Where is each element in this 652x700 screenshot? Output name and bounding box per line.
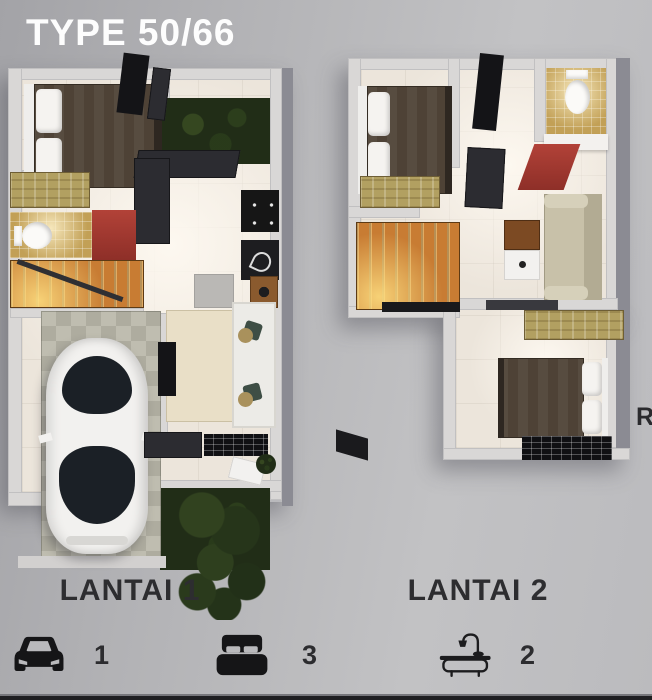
page-title: TYPE 50/66 [26, 12, 236, 54]
floor-label-lantai-1: LANTAI 1 [40, 574, 220, 608]
watermark-text: RS [636, 403, 652, 432]
wall-bathroom [534, 58, 546, 142]
stove [241, 190, 279, 232]
floorplan-lantai-2 [348, 58, 630, 460]
vanity-drain [519, 261, 526, 268]
bed-headboard [602, 358, 608, 438]
car-mirror [38, 432, 53, 443]
car-icon [12, 632, 66, 678]
kitchen-sink [241, 240, 279, 280]
floorplan-poster: TYPE 50/66 [0, 0, 652, 700]
plant-pot [256, 454, 276, 474]
carport-curb [18, 556, 166, 568]
bottom-border [0, 696, 652, 700]
car-bumper [66, 536, 128, 545]
bed-blanket [498, 358, 584, 438]
wardrobe [360, 176, 440, 208]
door-lintel [486, 300, 558, 310]
sofa [232, 302, 276, 428]
kitchen-cabinet [134, 158, 170, 244]
balcony-railing [522, 436, 612, 460]
wall-outer-face [616, 58, 630, 454]
bathroom [546, 68, 606, 136]
sofa-cushion [238, 392, 253, 407]
floor-label-lantai-2: LANTAI 2 [388, 574, 568, 608]
sofa-cushion [238, 328, 253, 343]
double-bed [498, 358, 608, 438]
stair-rail [17, 259, 124, 302]
toilet-tank [14, 226, 22, 246]
car-rear-window [62, 356, 132, 414]
wall [443, 306, 456, 460]
staircase [10, 260, 144, 308]
bed-icon [214, 632, 270, 678]
legend-bedrooms: 3 [214, 628, 317, 682]
coffee-table [144, 432, 202, 458]
pillow [582, 400, 602, 434]
wardrobe [10, 172, 90, 208]
sofa-back [584, 194, 602, 300]
rug [166, 310, 234, 422]
pillow [582, 362, 602, 396]
doormat [204, 434, 268, 456]
bedroom-count: 3 [302, 640, 317, 671]
sofa-armrest [544, 194, 588, 208]
dining-mat [194, 274, 234, 308]
car [46, 338, 148, 554]
car-windshield [59, 446, 135, 524]
legend-bathrooms: 2 [438, 628, 535, 682]
sofa-armrest [544, 286, 588, 300]
wall [8, 68, 293, 80]
floorplan-lantai-1 [8, 62, 293, 568]
stair-landing [382, 302, 460, 312]
toilet [22, 222, 52, 249]
legend-carport: 1 [12, 628, 109, 682]
cabinet [464, 147, 505, 209]
bathtub-icon [438, 629, 496, 681]
pillow [368, 92, 390, 136]
toilet-tank [566, 70, 588, 79]
railing-end [336, 429, 368, 460]
bathroom [10, 212, 92, 258]
toilet [565, 80, 590, 114]
vanity-top [504, 220, 540, 250]
staircase [356, 222, 460, 310]
bed-footboard [445, 86, 452, 194]
bathroom-count: 2 [520, 640, 535, 671]
wardrobe [524, 310, 624, 340]
red-wall [92, 210, 136, 260]
wall-outer-face [282, 68, 293, 506]
tv-living [158, 342, 176, 396]
carport-count: 1 [94, 640, 109, 671]
vanity [504, 220, 540, 280]
pillow [36, 89, 62, 133]
sofa [544, 194, 602, 300]
bed-footboard [498, 358, 504, 438]
